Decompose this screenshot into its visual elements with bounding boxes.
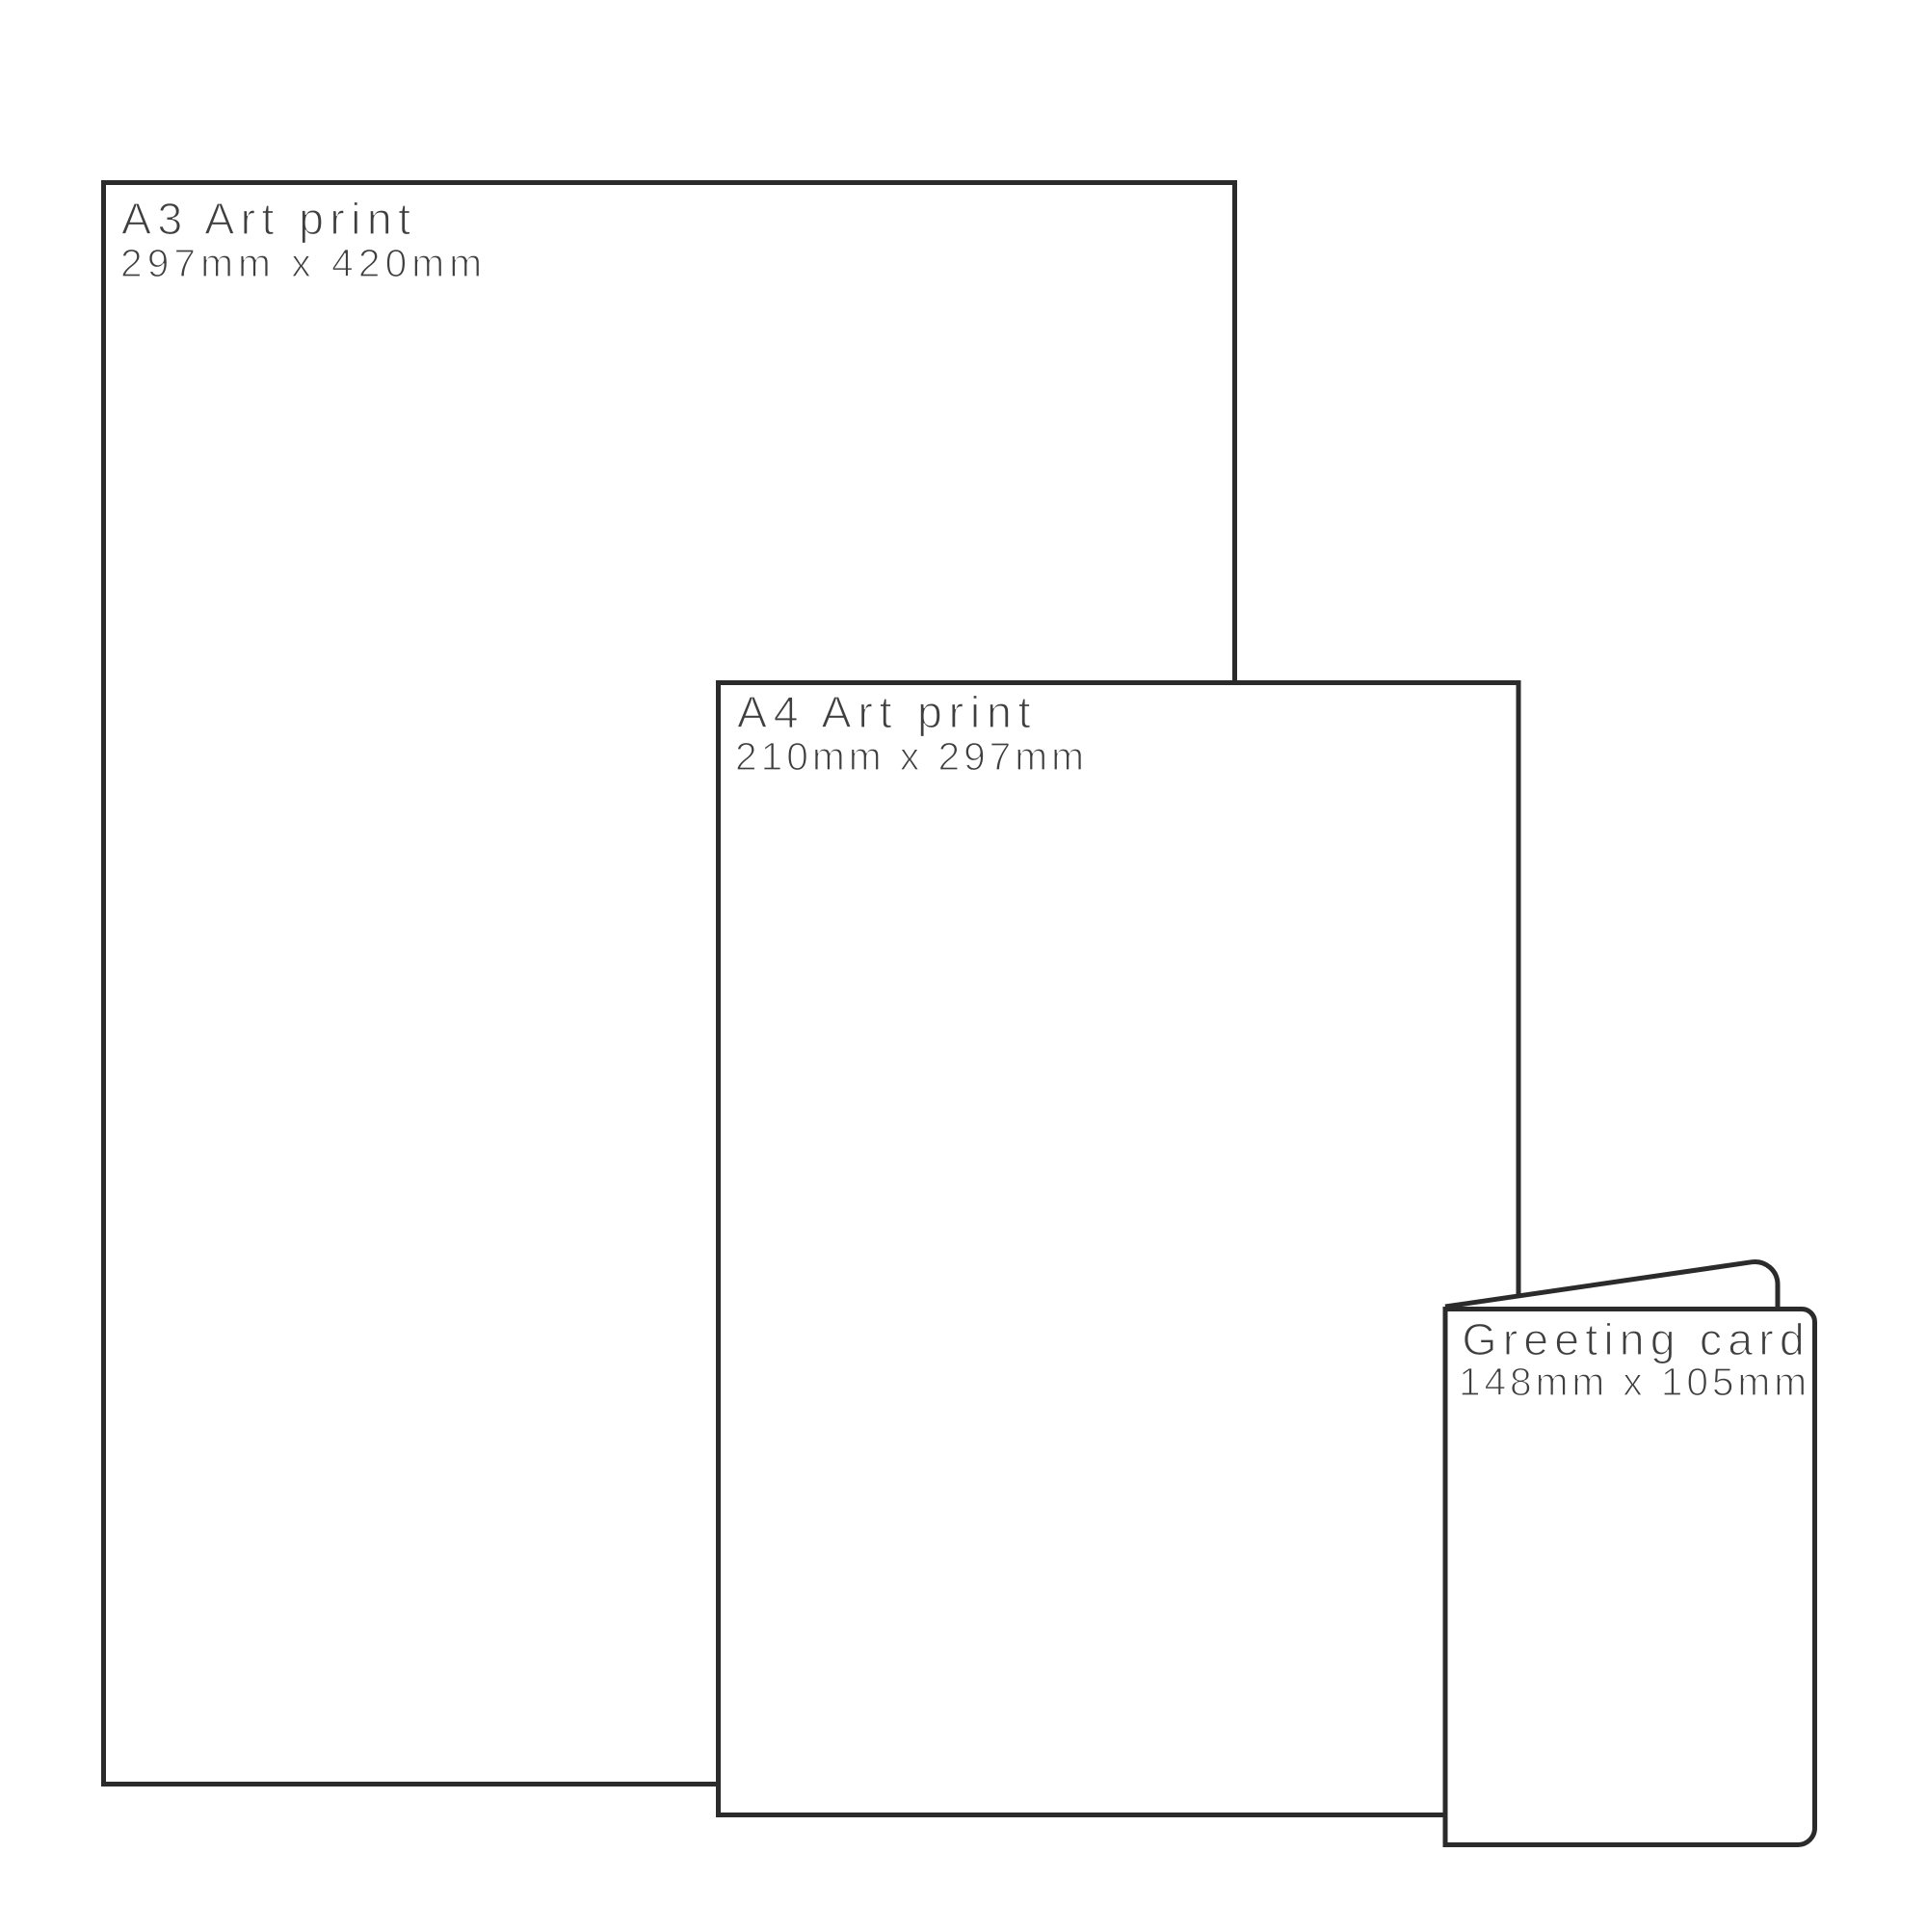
svg-text:148mm x 105mm: 148mm x 105mm	[1459, 1360, 1810, 1404]
svg-text:Greeting card: Greeting card	[1462, 1314, 1809, 1364]
svg-text:A3 Art print: A3 Art print	[121, 194, 416, 244]
svg-text:A4 Art print: A4 Art print	[737, 687, 1037, 737]
svg-text:297mm x 420mm: 297mm x 420mm	[120, 241, 487, 285]
svg-text:210mm x 297mm: 210mm x 297mm	[735, 734, 1088, 779]
